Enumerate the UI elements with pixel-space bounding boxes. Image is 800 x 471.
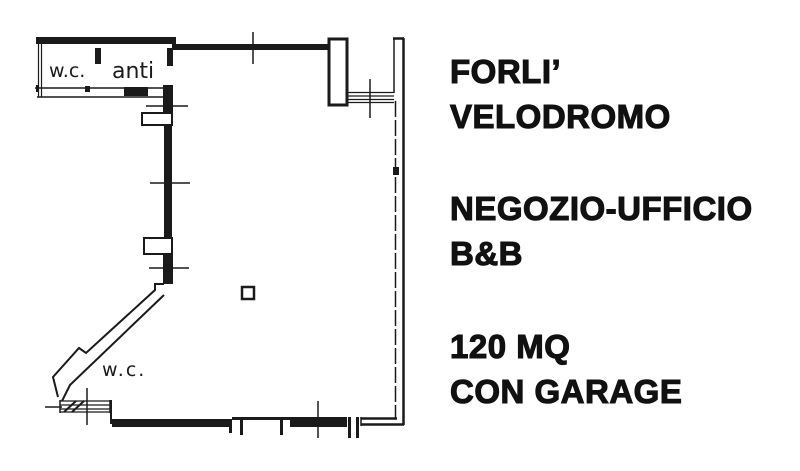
room-label-wc-top: w.c. <box>49 60 85 82</box>
room-label-wc-bottom: w.c. <box>102 359 146 381</box>
room-label-anti: anti <box>112 59 154 84</box>
floor-plan-page: w.c. anti w.c. FORLI’ VELODROMO NEGOZIO-… <box>0 0 800 471</box>
caption-type-line1: NEGOZIO-UFFICIO <box>450 191 753 227</box>
caption-type-line2: B&B <box>450 236 523 272</box>
caption-location-line1: FORLI’ <box>450 54 561 90</box>
diagonal-wall <box>53 284 164 401</box>
caption-size-line1: 120 MQ <box>450 329 570 365</box>
pillar-and-window <box>329 39 394 118</box>
left-wall <box>142 85 190 284</box>
bottom-wall <box>45 388 404 438</box>
caption-location-line2: VELODROMO <box>450 99 671 135</box>
column-marker <box>242 287 254 299</box>
right-wall <box>393 38 404 425</box>
caption-size-line2: CON GARAGE <box>450 374 682 410</box>
